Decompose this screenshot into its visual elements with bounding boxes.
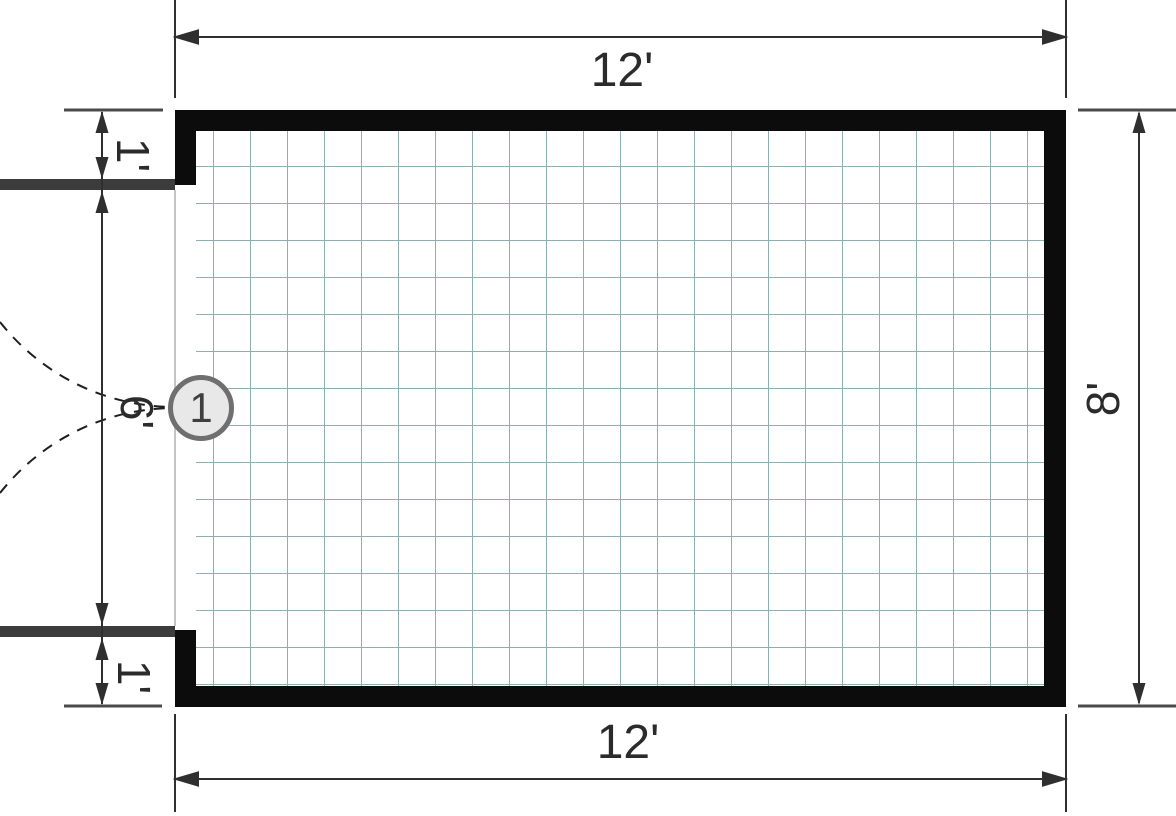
door-tag: 1	[168, 375, 234, 441]
arrowhead-down	[96, 603, 109, 625]
dimension-label-top-width: 12'	[591, 47, 654, 95]
arrowhead-right	[1043, 773, 1065, 786]
floor-plan-canvas: 12' 12' 1' 6' 1' 8' 1	[0, 0, 1176, 816]
arrowhead-up	[1133, 111, 1146, 133]
arrowhead-up	[96, 191, 109, 213]
dimension-label-right-height: 8'	[1080, 382, 1126, 416]
arrowhead-down	[96, 683, 109, 705]
dimension-label-bottom-width: 12'	[597, 719, 660, 767]
door-tag-number: 1	[189, 387, 212, 429]
arrowhead-up	[96, 638, 109, 660]
arrowhead-up	[96, 111, 109, 133]
dimension-label-opening-width: 6'	[114, 395, 160, 429]
dimension-label-left-bottom-offset: 1'	[111, 660, 157, 694]
arrowhead-down	[1133, 683, 1146, 705]
arrowhead-left	[176, 773, 198, 786]
dimension-label-left-top-offset: 1'	[110, 138, 156, 172]
arrowhead-left	[176, 31, 198, 44]
arrowhead-right	[1043, 31, 1065, 44]
